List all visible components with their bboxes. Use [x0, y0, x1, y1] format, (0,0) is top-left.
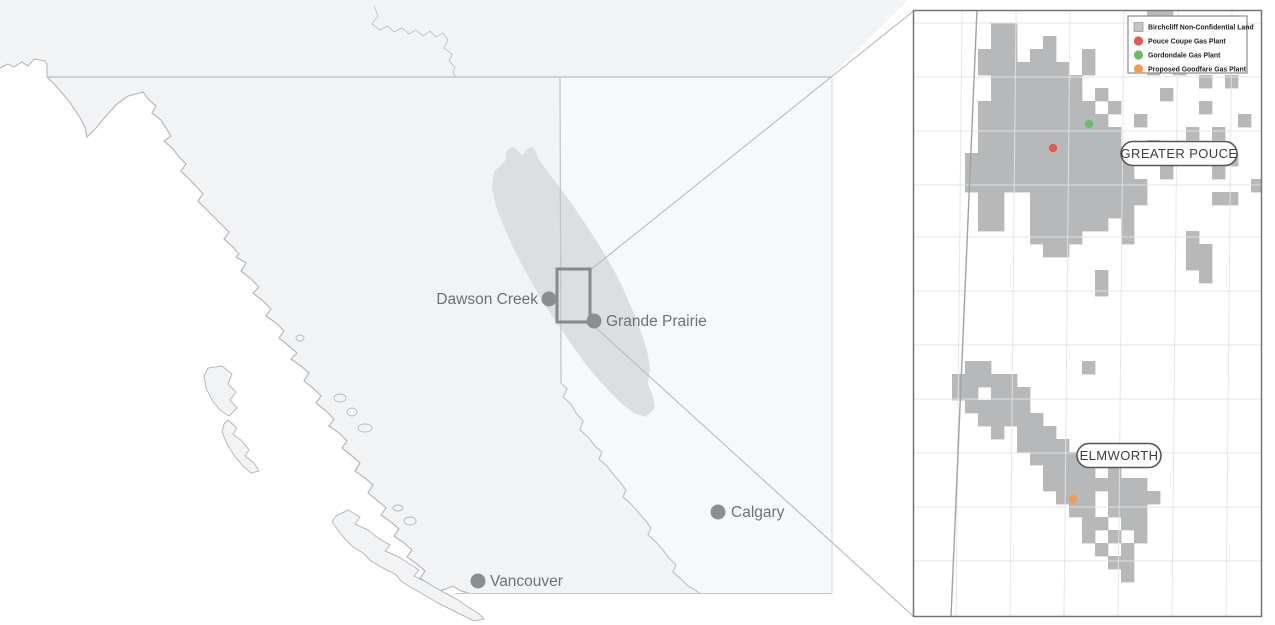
land-cell — [978, 218, 991, 231]
land-cell — [1121, 478, 1134, 491]
land-cell — [1069, 127, 1082, 140]
land-cell — [1043, 231, 1056, 244]
land-cell — [1186, 244, 1199, 257]
land-cell — [991, 36, 1004, 49]
land-cell — [1095, 140, 1108, 153]
land-cell — [1069, 153, 1082, 166]
land-cell — [1082, 504, 1095, 517]
land-cell — [1056, 140, 1069, 153]
land-cell — [1069, 205, 1082, 218]
land-cell — [1004, 127, 1017, 140]
land-cell — [1056, 101, 1069, 114]
land-cell — [991, 62, 1004, 75]
land-cell — [1043, 192, 1056, 205]
land-cell — [1095, 166, 1108, 179]
land-cell — [1043, 166, 1056, 179]
land-cell — [965, 361, 978, 374]
land-cell — [978, 374, 991, 387]
land-cell — [1238, 114, 1251, 127]
land-cell — [1082, 205, 1095, 218]
land-cell — [1082, 62, 1095, 75]
land-cell — [1095, 205, 1108, 218]
land-cell — [1056, 88, 1069, 101]
land-cell — [1069, 231, 1082, 244]
city-dot-calgary[interactable] — [711, 505, 726, 520]
land-cell — [1121, 556, 1134, 569]
land-cell — [1004, 374, 1017, 387]
land-cell — [978, 166, 991, 179]
land-cell — [1108, 166, 1121, 179]
land-cell — [965, 374, 978, 387]
land-cell — [1134, 179, 1147, 192]
land-cell — [1160, 166, 1173, 179]
land-cell — [1043, 426, 1056, 439]
land-cell — [1056, 205, 1069, 218]
city-label-vancouver: Vancouver — [490, 573, 563, 590]
land-cell — [1043, 101, 1056, 114]
city-label-calgary: Calgary — [731, 504, 785, 521]
land-cell — [1082, 166, 1095, 179]
land-cell — [978, 127, 991, 140]
land-cell — [978, 49, 991, 62]
land-cell — [1017, 140, 1030, 153]
land-cell — [1017, 127, 1030, 140]
land-cell — [1082, 478, 1095, 491]
land-cell — [1017, 101, 1030, 114]
land-cell — [1095, 283, 1108, 296]
land-cell — [1030, 114, 1043, 127]
land-cell — [1108, 101, 1121, 114]
legend-item-label: Gordondale Gas Plant — [1148, 52, 1221, 59]
land-cell — [1069, 504, 1082, 517]
area-label-text: GREATER POUCE — [1121, 146, 1238, 161]
land-cell — [978, 400, 991, 413]
land-cell — [1030, 127, 1043, 140]
land-cell — [1043, 127, 1056, 140]
legend-swatch-circle — [1134, 64, 1143, 73]
land-cell — [1069, 101, 1082, 114]
land-cell — [1043, 205, 1056, 218]
land-cell — [1030, 49, 1043, 62]
legend-swatch-circle — [1134, 36, 1143, 45]
land-cell — [1095, 179, 1108, 192]
land-cell — [1147, 491, 1160, 504]
land-cell — [1004, 179, 1017, 192]
land-cell — [1030, 426, 1043, 439]
land-cell — [1121, 543, 1134, 556]
land-cell — [991, 101, 1004, 114]
land-cell — [1108, 556, 1121, 569]
land-cell — [1056, 114, 1069, 127]
land-cell — [1056, 439, 1069, 452]
land-cell — [1043, 452, 1056, 465]
land-cell — [1186, 231, 1199, 244]
land-cell — [991, 374, 1004, 387]
land-cell — [1030, 88, 1043, 101]
land-cell — [1056, 192, 1069, 205]
land-cell — [1017, 114, 1030, 127]
land-cell — [1082, 491, 1095, 504]
area-label-greater-pouce: GREATER POUCE — [1121, 142, 1238, 166]
land-cell — [978, 413, 991, 426]
land-cell — [1043, 88, 1056, 101]
land-cell — [1121, 491, 1134, 504]
land-cell — [1069, 218, 1082, 231]
land-cell — [1017, 387, 1030, 400]
land-cell — [1108, 530, 1121, 543]
legend-item-label: Proposed Goodfare Gas Plant — [1148, 66, 1247, 73]
land-cell — [1017, 153, 1030, 166]
land-cell — [1043, 114, 1056, 127]
land-cell — [991, 88, 1004, 101]
inset-legend: Birchcliff Non-Confidential LandPouce Co… — [1128, 16, 1254, 74]
land-cell — [978, 205, 991, 218]
city-dot-vancouver[interactable] — [471, 574, 486, 589]
land-cell — [1095, 114, 1108, 127]
land-cell — [978, 62, 991, 75]
land-cell — [1069, 166, 1082, 179]
land-cell — [1095, 192, 1108, 205]
land-cell — [1108, 179, 1121, 192]
land-cell — [1030, 218, 1043, 231]
land-cell — [1004, 400, 1017, 413]
land-cell — [991, 218, 1004, 231]
land-cell — [1056, 491, 1069, 504]
land-cell — [1043, 36, 1056, 49]
land-cell — [1134, 491, 1147, 504]
land-cell — [965, 153, 978, 166]
land-cell — [1043, 244, 1056, 257]
land-cell — [1056, 62, 1069, 75]
land-cell — [991, 205, 1004, 218]
land-cell — [1056, 166, 1069, 179]
area-label-elmworth: ELMWORTH — [1077, 444, 1161, 468]
land-cell — [991, 166, 1004, 179]
land-cell — [1082, 49, 1095, 62]
gordondale-gas-plant-marker[interactable] — [1085, 120, 1093, 128]
land-cell — [1017, 400, 1030, 413]
land-cell — [1030, 62, 1043, 75]
land-cell — [978, 153, 991, 166]
land-cell — [1095, 153, 1108, 166]
land-cell — [1017, 439, 1030, 452]
land-cell — [1121, 218, 1134, 231]
legend-swatch-circle — [1134, 50, 1143, 59]
land-cell — [1056, 478, 1069, 491]
land-cell — [1043, 218, 1056, 231]
land-cell — [1095, 88, 1108, 101]
legend-item-label: Birchcliff Non-Confidential Land — [1148, 24, 1254, 31]
land-cell — [1017, 62, 1030, 75]
land-cell — [1017, 413, 1030, 426]
land-cell — [1017, 88, 1030, 101]
land-cell — [965, 179, 978, 192]
land-cell — [1186, 257, 1199, 270]
land-cell — [1030, 140, 1043, 153]
land-cell — [1134, 517, 1147, 530]
land-cell — [1043, 153, 1056, 166]
land-cell — [991, 179, 1004, 192]
land-cell — [1121, 192, 1134, 205]
land-cell — [1043, 478, 1056, 491]
land-cell — [1030, 439, 1043, 452]
land-cell — [1082, 140, 1095, 153]
haida-gwaii-islands — [204, 366, 259, 473]
land-cell — [1121, 231, 1134, 244]
land-cell — [1095, 517, 1108, 530]
land-cell — [1082, 101, 1095, 114]
land-cell — [1212, 166, 1225, 179]
legend-swatch-square — [1134, 23, 1143, 32]
land-cell — [1095, 218, 1108, 231]
land-cell — [1134, 192, 1147, 205]
land-cell — [1069, 114, 1082, 127]
land-cell — [1004, 413, 1017, 426]
land-cell — [1212, 127, 1225, 140]
land-cell — [991, 192, 1004, 205]
land-cell — [991, 49, 1004, 62]
land-cell — [1095, 270, 1108, 283]
land-cell — [1199, 244, 1212, 257]
land-cell — [1160, 88, 1173, 101]
land-cell — [1082, 192, 1095, 205]
land-cell — [1134, 114, 1147, 127]
land-cell — [991, 127, 1004, 140]
land-cell — [1017, 166, 1030, 179]
land-cell — [1134, 530, 1147, 543]
land-cell — [1121, 569, 1134, 582]
land-cell — [1121, 166, 1134, 179]
land-cell — [1069, 465, 1082, 478]
land-cell — [1004, 140, 1017, 153]
land-cell — [965, 400, 978, 413]
land-cell — [978, 114, 991, 127]
land-cell — [1030, 205, 1043, 218]
land-cell — [1212, 192, 1225, 205]
land-cell — [1017, 426, 1030, 439]
land-cell — [978, 192, 991, 205]
land-cell — [991, 426, 1004, 439]
land-cell — [1082, 361, 1095, 374]
city-dot-grande-prairie[interactable] — [587, 314, 602, 329]
land-cell — [991, 23, 1004, 36]
land-cell — [978, 179, 991, 192]
city-label-grande-prairie: Grande Prairie — [606, 313, 707, 330]
land-cell — [1225, 192, 1238, 205]
land-cell — [991, 413, 1004, 426]
city-label-dawson-creek: Dawson Creek — [436, 291, 538, 308]
land-cell — [1199, 257, 1212, 270]
land-cell — [991, 153, 1004, 166]
land-cell — [1108, 153, 1121, 166]
land-cell — [1134, 478, 1147, 491]
land-cell — [1030, 166, 1043, 179]
land-cell — [978, 140, 991, 153]
land-cell — [1056, 179, 1069, 192]
land-cell — [1095, 478, 1108, 491]
land-cell — [978, 101, 991, 114]
land-cell — [1004, 153, 1017, 166]
land-cell — [978, 361, 991, 374]
land-cell — [1069, 192, 1082, 205]
land-cell — [1056, 153, 1069, 166]
land-cell — [1043, 439, 1056, 452]
land-cell — [1121, 205, 1134, 218]
land-cell — [1121, 504, 1134, 517]
land-cell — [991, 387, 1004, 400]
land-cell — [1121, 179, 1134, 192]
land-cell — [1134, 504, 1147, 517]
land-cell — [1082, 153, 1095, 166]
city-dot-dawson-creek[interactable] — [542, 292, 557, 307]
land-cell — [1199, 270, 1212, 283]
overview-map: Dawson CreekGrande PrairieCalgaryVancouv… — [0, 0, 914, 621]
area-label-text: ELMWORTH — [1080, 448, 1159, 463]
land-cell — [1199, 101, 1212, 114]
land-cell — [1030, 231, 1043, 244]
land-cell — [1108, 140, 1121, 153]
land-cell — [1030, 179, 1043, 192]
land-cell — [1056, 452, 1069, 465]
land-cell — [1095, 543, 1108, 556]
land-cell — [1043, 62, 1056, 75]
land-cell — [1082, 218, 1095, 231]
land-cell — [991, 400, 1004, 413]
land-cell — [1186, 127, 1199, 140]
map-canvas: Dawson CreekGrande PrairieCalgaryVancouv… — [0, 0, 1275, 625]
land-cell — [1082, 517, 1095, 530]
inset-map: GREATER POUCE ELMWORTH Birchcliff Non-Co… — [913, 10, 1264, 617]
land-cell — [1056, 127, 1069, 140]
land-cell — [1043, 465, 1056, 478]
land-cell — [1030, 192, 1043, 205]
land-cell — [1108, 127, 1121, 140]
land-cell — [1108, 192, 1121, 205]
proposed-goodfare-gas-plant-marker[interactable] — [1069, 495, 1077, 503]
pouce-coupe-gas-plant-marker[interactable] — [1049, 144, 1057, 152]
legend-item-label: Pouce Coupe Gas Plant — [1148, 38, 1226, 45]
land-cell — [1030, 452, 1043, 465]
land-cell — [1069, 88, 1082, 101]
land-cell — [1030, 413, 1043, 426]
land-cell — [1030, 101, 1043, 114]
land-cell — [991, 140, 1004, 153]
land-cell — [1043, 49, 1056, 62]
land-cell — [1108, 205, 1121, 218]
land-cell — [1251, 179, 1264, 192]
land-cell — [1082, 530, 1095, 543]
land-cell — [1043, 179, 1056, 192]
land-cell — [1069, 140, 1082, 153]
land-cell — [1017, 179, 1030, 192]
map-figure: Dawson CreekGrande PrairieCalgaryVancouv… — [0, 0, 1275, 625]
land-cell — [991, 114, 1004, 127]
land-cell — [1004, 387, 1017, 400]
land-cell — [1082, 179, 1095, 192]
land-cell — [965, 387, 978, 400]
land-cell — [1082, 127, 1095, 140]
land-cell — [965, 166, 978, 179]
land-cell — [1069, 179, 1082, 192]
land-cell — [1121, 517, 1134, 530]
land-cell — [1056, 465, 1069, 478]
land-cell — [1095, 127, 1108, 140]
land-cell — [1030, 153, 1043, 166]
land-cell — [1004, 166, 1017, 179]
land-cell — [1069, 478, 1082, 491]
